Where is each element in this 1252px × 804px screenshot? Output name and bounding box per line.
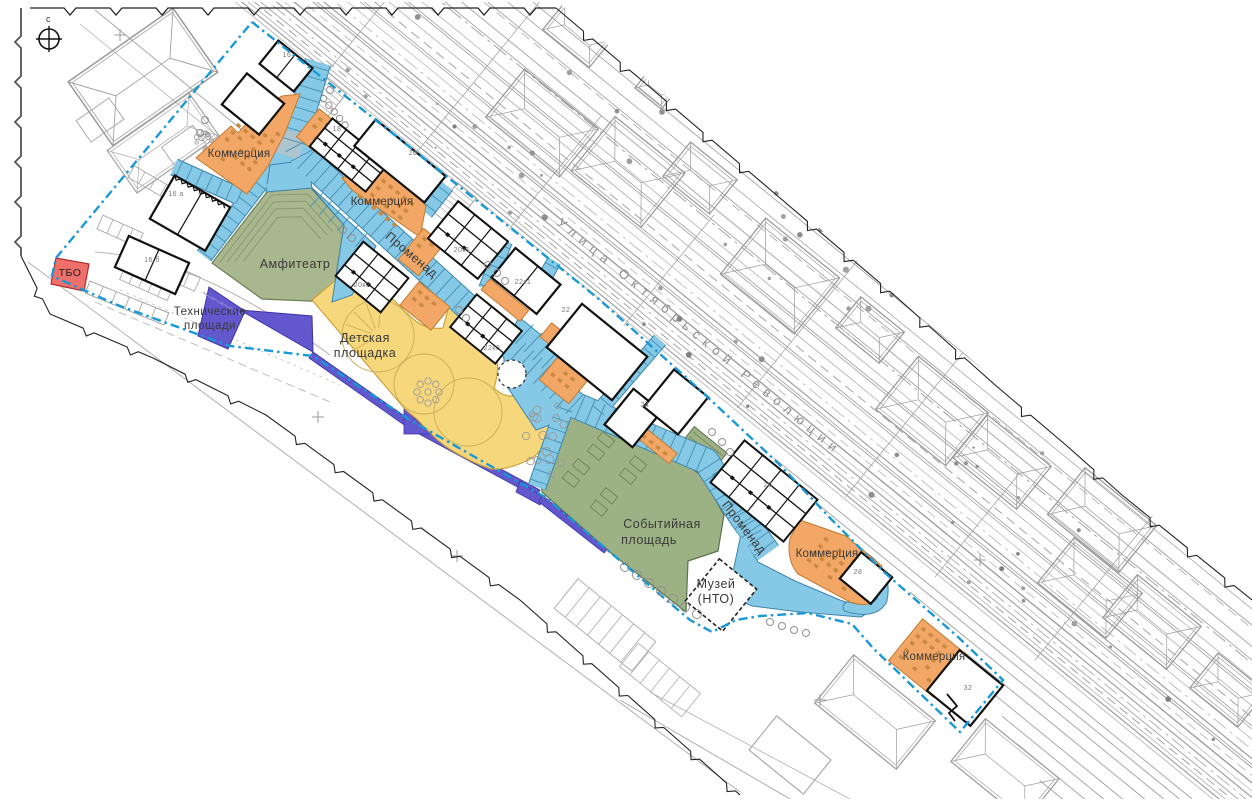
svg-text:Технические: Технические <box>174 306 247 318</box>
svg-text:площадь: площадь <box>621 533 677 547</box>
svg-text:20к2: 20к2 <box>354 282 371 289</box>
svg-text:Музей: Музей <box>697 577 736 591</box>
svg-text:20: 20 <box>409 150 418 157</box>
svg-text:32: 32 <box>964 685 973 692</box>
svg-text:Амфитеатр: Амфитеатр <box>260 257 331 271</box>
svg-text:Событийная: Событийная <box>623 517 700 531</box>
svg-text:Коммерция: Коммерция <box>903 651 966 663</box>
svg-text:Коммерция: Коммерция <box>796 548 859 560</box>
svg-text:Коммерция: Коммерция <box>208 148 271 160</box>
svg-text:с: с <box>46 14 51 24</box>
svg-text:18: 18 <box>333 126 342 133</box>
svg-text:26: 26 <box>764 482 773 489</box>
svg-text:22к1: 22к1 <box>515 279 532 286</box>
svg-text:16: 16 <box>283 52 292 59</box>
svg-text:24: 24 <box>641 402 650 409</box>
svg-text:(НТО): (НТО) <box>698 592 735 606</box>
svg-text:площади: площади <box>184 320 236 332</box>
svg-text:20к1: 20к1 <box>454 247 471 254</box>
svg-text:Детская: Детская <box>340 331 390 345</box>
svg-text:16 б: 16 б <box>144 256 160 264</box>
svg-text:ТБО: ТБО <box>59 267 82 279</box>
svg-text:28: 28 <box>854 569 863 576</box>
svg-text:Коммерция: Коммерция <box>351 196 414 208</box>
svg-text:22к3: 22к3 <box>484 345 501 352</box>
svg-text:16 а: 16 а <box>168 191 184 198</box>
svg-text:22: 22 <box>562 307 571 314</box>
svg-text:площадка: площадка <box>334 346 396 360</box>
